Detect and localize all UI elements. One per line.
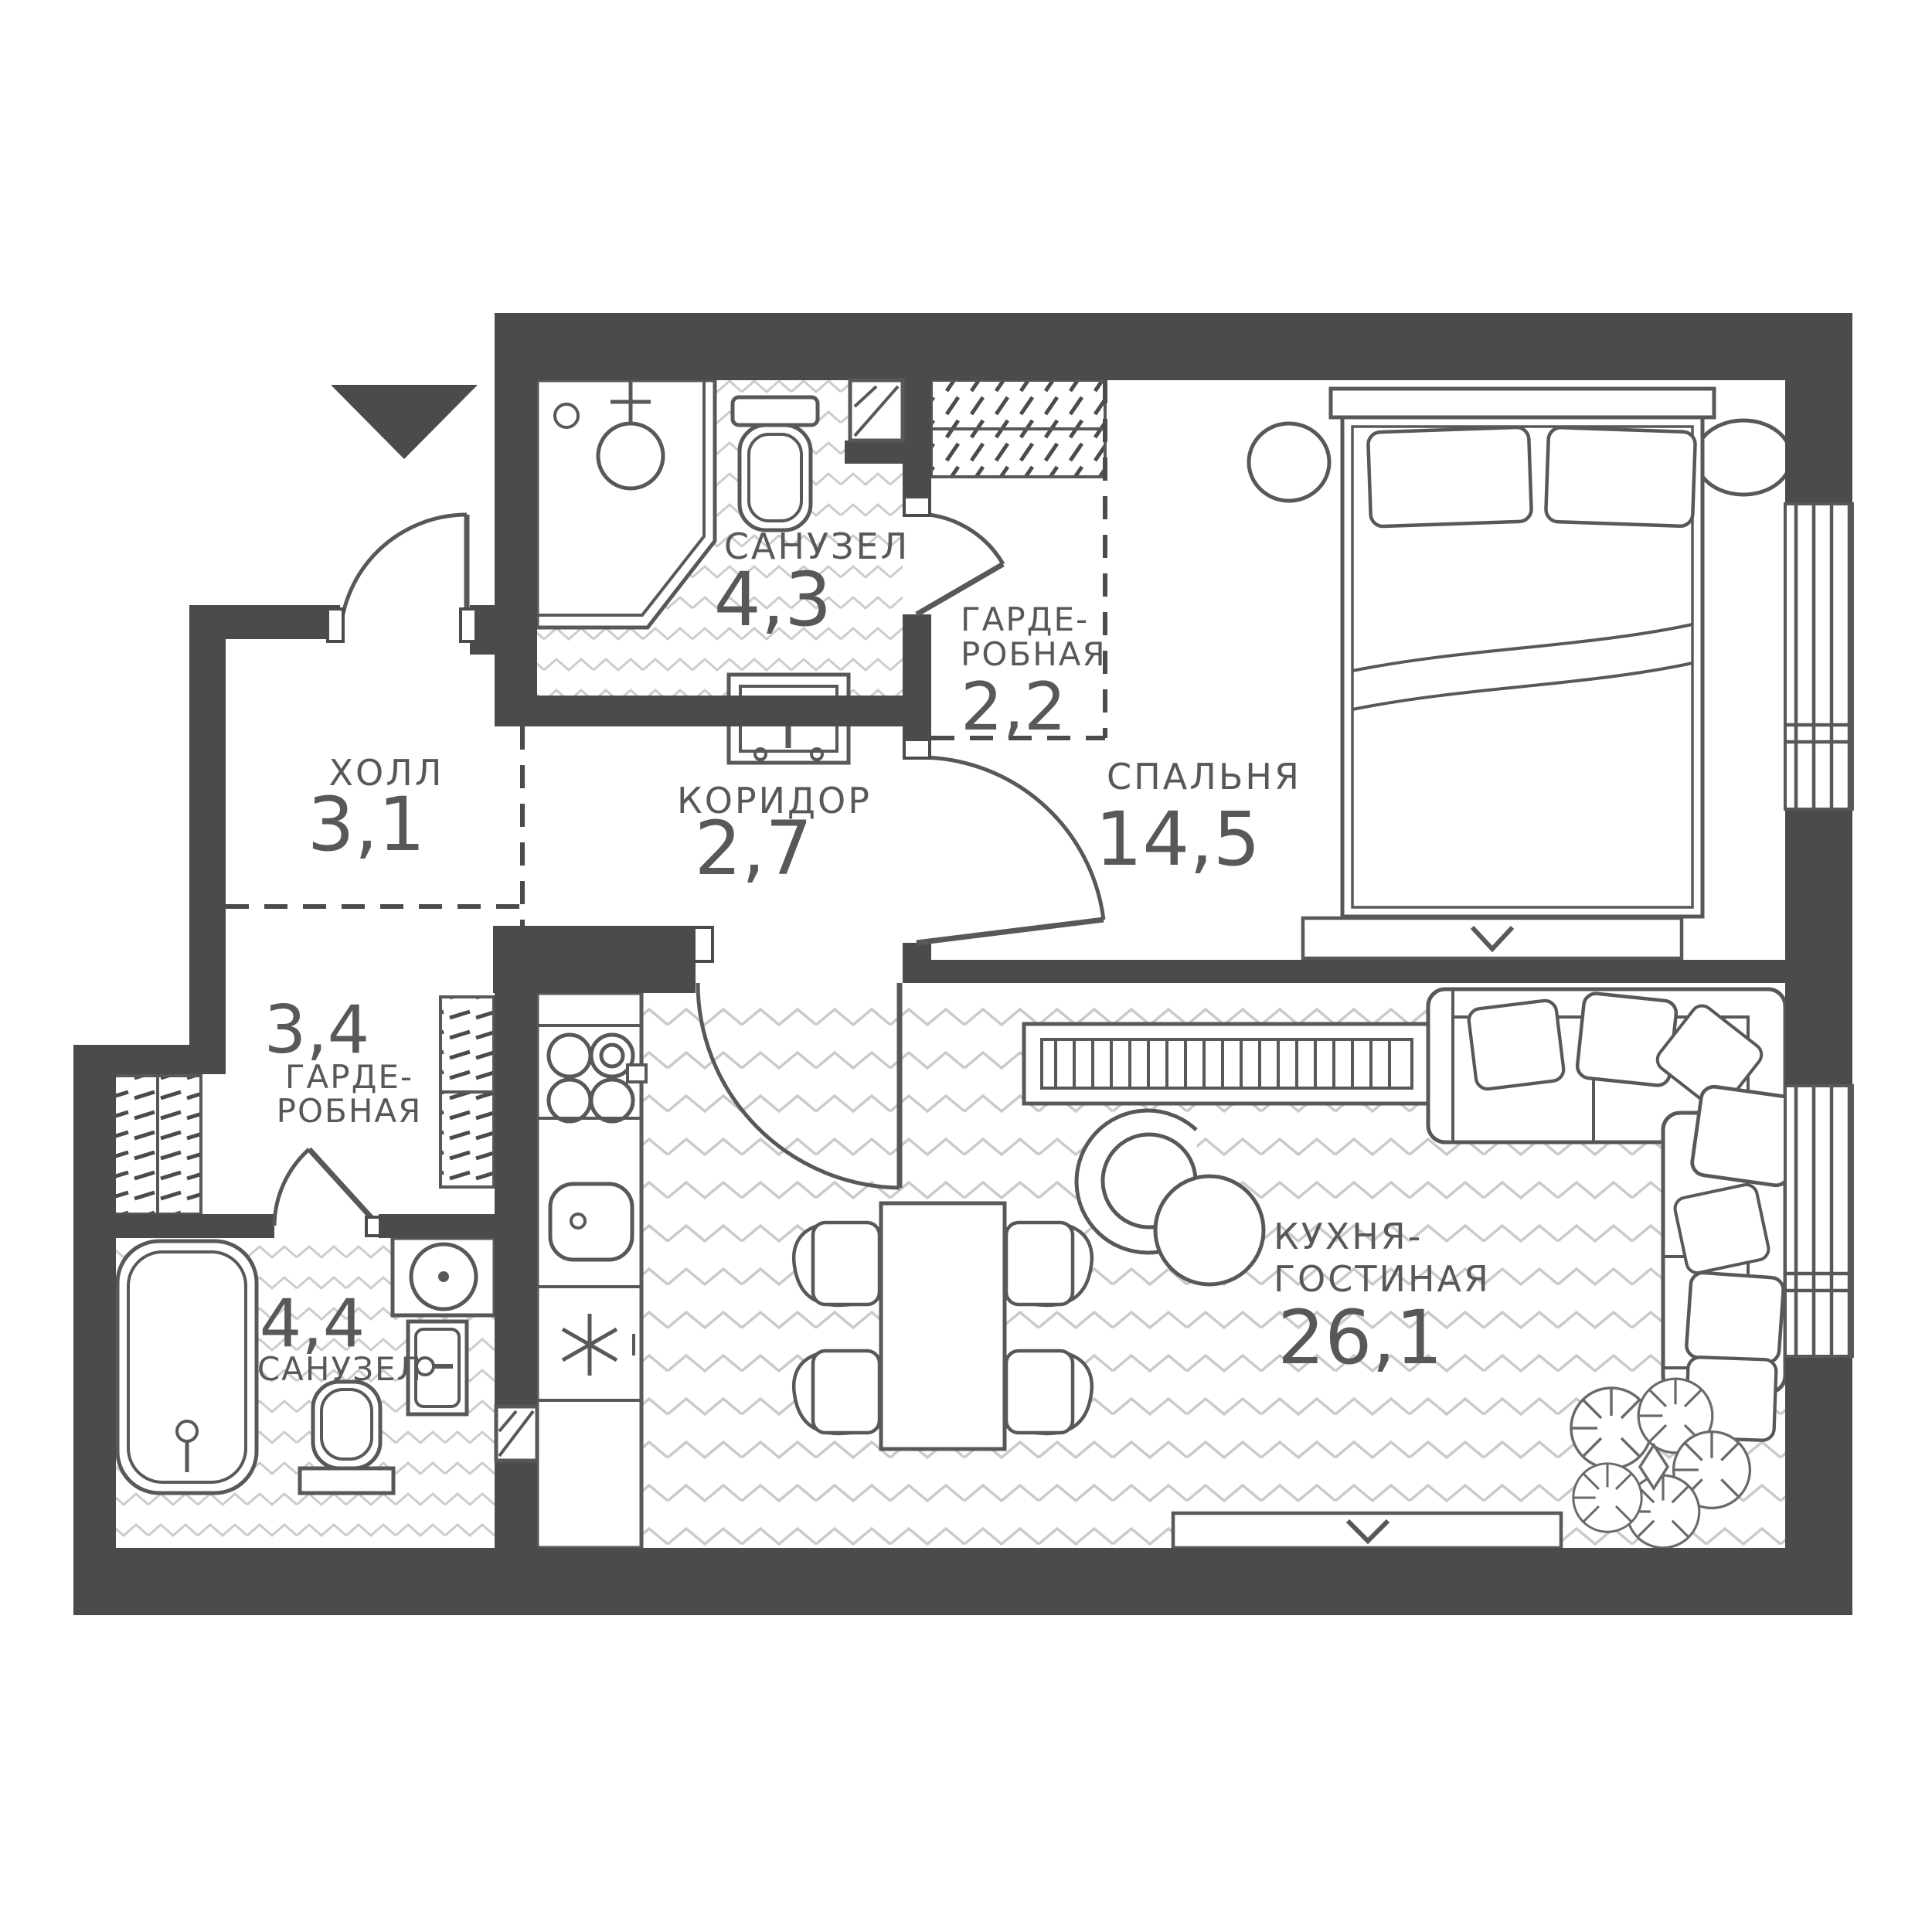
- label-wardrobe-hall-2: РОБНАЯ: [277, 1092, 423, 1130]
- area-bedroom: 14,5: [1095, 796, 1260, 883]
- wall-vent-niche: [845, 440, 903, 464]
- tv-console: [1024, 1024, 1430, 1104]
- bed-pillow-right: [1546, 427, 1696, 527]
- wall-bath-bottom-top-a: [116, 1214, 274, 1238]
- vent-shaft-icon: [496, 1406, 537, 1461]
- bed-headboard: [1331, 389, 1714, 417]
- nightstand-left: [1249, 423, 1329, 501]
- entrance-door: [340, 515, 467, 641]
- wall-bath-top-left: [495, 380, 537, 726]
- area-kitchen-living: 26,1: [1277, 1294, 1443, 1381]
- label-wardrobe-hall-1: ГАРДЕ-: [285, 1058, 413, 1096]
- washing-machine: [393, 1238, 495, 1315]
- area-wardrobe-hall: 3,4: [264, 992, 370, 1069]
- wardrobe-rail-left: [114, 1076, 201, 1214]
- toilet-top: [733, 397, 818, 530]
- wall-hall-top: [189, 605, 340, 639]
- bathroom-top-door: [917, 514, 1003, 614]
- area-hall: 3,1: [308, 781, 426, 868]
- vent-shaft-icon: [850, 380, 903, 440]
- wall-bath-top-right-a: [903, 380, 931, 514]
- floor-plan-svg: ХОЛЛ 3,1 САНУЗЕЛ 4,3 ГАРДЕ- РОБНАЯ 2,2 К…: [0, 0, 1932, 1932]
- label-kitchen-living-2: ГОСТИНАЯ: [1274, 1258, 1491, 1300]
- wall-bath-top-right-b: [903, 614, 931, 726]
- wardrobe-rail-right: [440, 997, 494, 1187]
- wall-bath-top-bottom: [495, 696, 903, 726]
- wall-bedroom-living: [931, 960, 1785, 983]
- label-wardrobe-bedroom-1: ГАРДЕ-: [961, 600, 1089, 638]
- wall-corridor-kitchen-pier: [493, 926, 696, 993]
- entrance-arrow: [331, 385, 478, 459]
- kitchen-counter: [537, 993, 646, 1548]
- wall-top: [495, 313, 1852, 380]
- pouf: [1155, 1176, 1264, 1284]
- label-bathroom-bottom: САНУЗЕЛ: [257, 1350, 423, 1388]
- bedroom-door: [917, 757, 1104, 943]
- label-bedroom: СПАЛЬНЯ: [1107, 756, 1301, 798]
- area-wardrobe-bedroom: 2,2: [961, 668, 1066, 746]
- window-living: [1785, 1086, 1852, 1356]
- bedroom-furniture: [1249, 389, 1791, 958]
- label-kitchen-living-1: КУХНЯ-: [1274, 1216, 1423, 1257]
- bathroom-bottom-door: [274, 1149, 379, 1226]
- wardrobe-rail-bedroom: [931, 380, 1105, 477]
- wall-bath-bottom-top-b: [379, 1214, 495, 1238]
- area-corridor: 2,7: [695, 805, 813, 892]
- window-bedroom: [1785, 504, 1852, 809]
- label-wardrobe-bedroom-2: РОБНАЯ: [961, 635, 1107, 673]
- living-console: [1173, 1513, 1561, 1548]
- bedroom-dresser: [1303, 918, 1682, 958]
- nightstand-right: [1696, 420, 1791, 495]
- bathtub: [117, 1241, 257, 1493]
- wall-kitchen-left: [495, 993, 537, 1548]
- wall-bedroom-door-b: [903, 943, 931, 983]
- floor-plan-canvas: ХОЛЛ 3,1 САНУЗЕЛ 4,3 ГАРДЕ- РОБНАЯ 2,2 К…: [0, 0, 1932, 1932]
- wall-bottom: [73, 1548, 1852, 1615]
- bed-pillow-left: [1368, 427, 1532, 526]
- toilet-bottom: [300, 1382, 393, 1493]
- dining-table: [881, 1203, 1005, 1449]
- area-bathroom-top: 4,3: [714, 556, 832, 643]
- wall-left-lower: [73, 1045, 116, 1615]
- double-bed: [1331, 389, 1714, 917]
- wall-hall-left: [189, 605, 226, 1074]
